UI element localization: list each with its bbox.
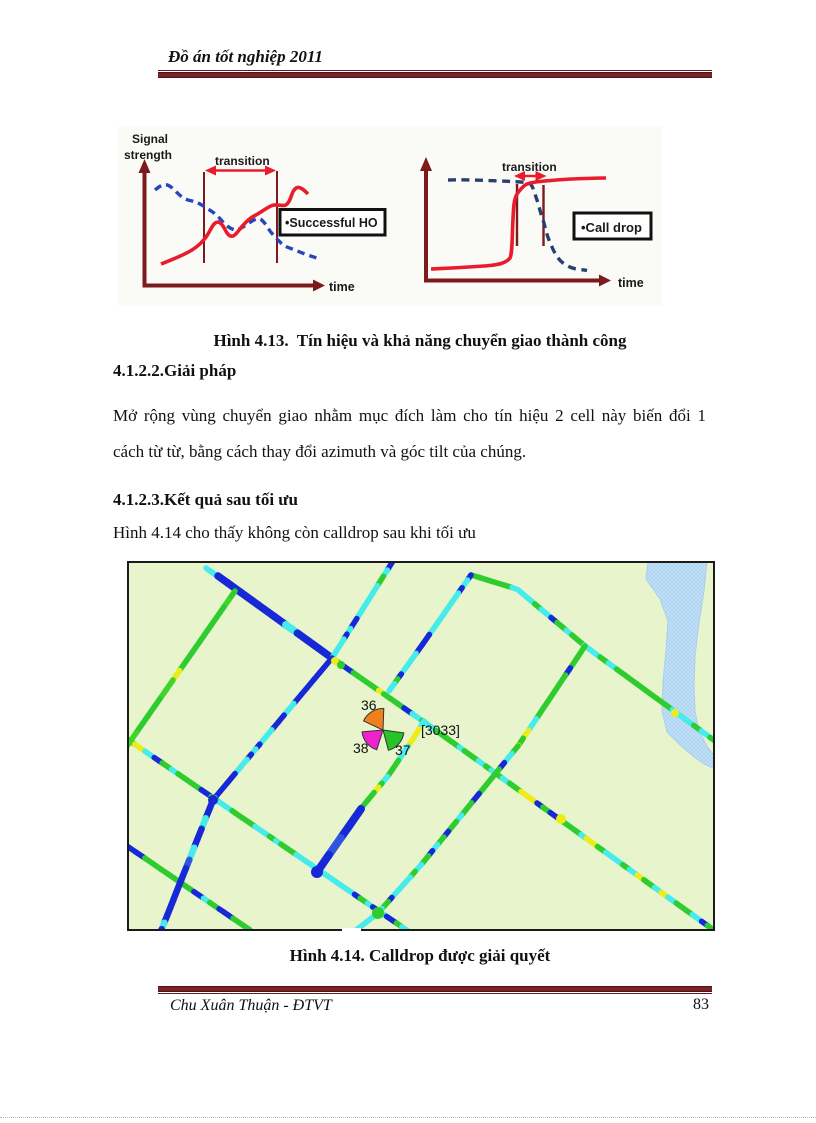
svg-text:[3033]: [3033] xyxy=(421,722,460,738)
svg-text:time: time xyxy=(618,276,644,290)
svg-text:strength: strength xyxy=(124,148,172,162)
svg-text:time: time xyxy=(329,280,355,294)
svg-text:37: 37 xyxy=(395,742,411,758)
svg-text:Signal: Signal xyxy=(132,132,168,146)
svg-text:•Successful HO: •Successful HO xyxy=(285,216,378,230)
svg-text:•Call drop: •Call drop xyxy=(581,220,642,235)
svg-text:transition: transition xyxy=(215,154,270,168)
svg-text:38: 38 xyxy=(353,740,369,756)
svg-text:transition: transition xyxy=(502,160,557,174)
svg-text:36: 36 xyxy=(361,697,377,713)
